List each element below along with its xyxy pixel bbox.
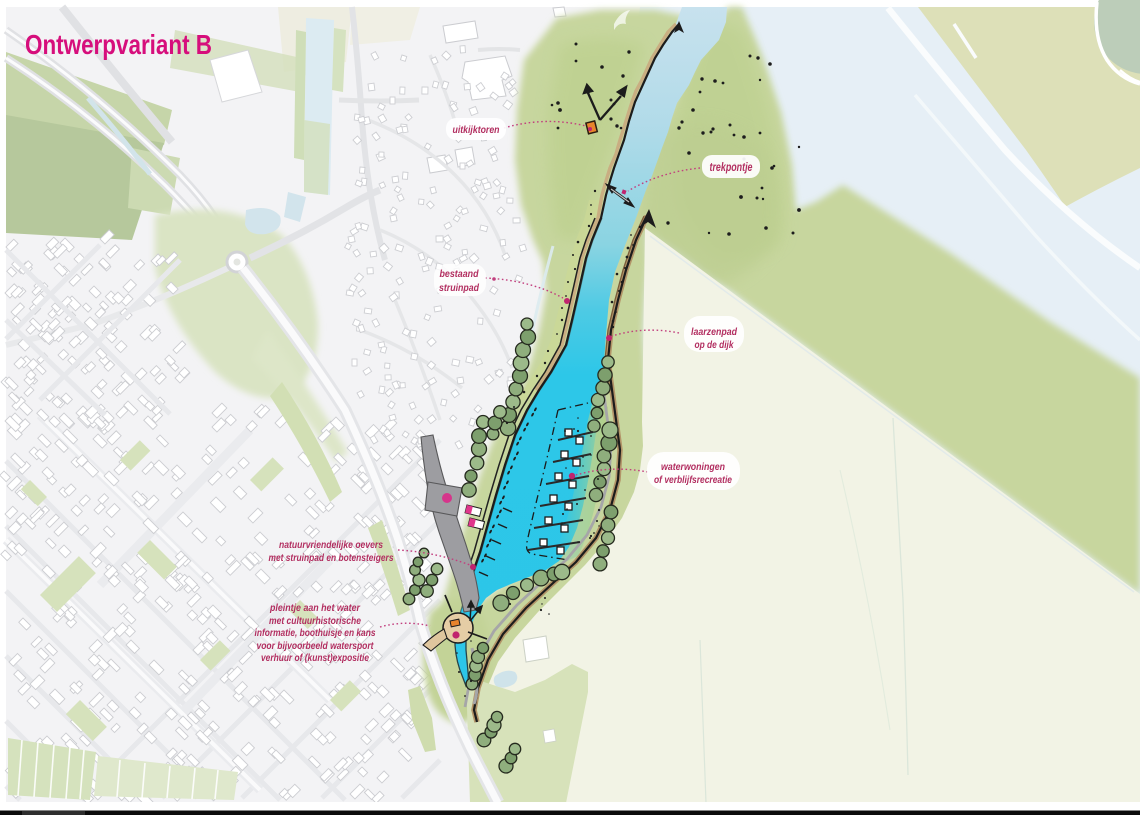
svg-text:uitkijktoren: uitkijktoren bbox=[453, 124, 500, 136]
svg-text:struinpad: struinpad bbox=[439, 282, 479, 294]
svg-text:pleintje aan het water: pleintje aan het water bbox=[269, 602, 361, 614]
svg-text:met struinpad en botensteigers: met struinpad en botensteigers bbox=[269, 552, 394, 564]
svg-text:voor bijvoorbeeld watersport: voor bijvoorbeeld watersport bbox=[257, 640, 374, 652]
svg-text:informatie, boothuisje en kans: informatie, boothuisje en kans bbox=[255, 627, 376, 639]
svg-text:op de dijk: op de dijk bbox=[695, 339, 735, 351]
svg-text:Ontwerpvariant B: Ontwerpvariant B bbox=[25, 29, 212, 60]
svg-text:natuurvriendelijke oevers: natuurvriendelijke oevers bbox=[279, 539, 383, 551]
svg-text:met cultuurhistorische: met cultuurhistorische bbox=[269, 615, 361, 627]
svg-text:laarzenpad: laarzenpad bbox=[691, 326, 737, 338]
svg-text:bestaand: bestaand bbox=[440, 268, 479, 280]
svg-text:trekpontje: trekpontje bbox=[710, 162, 753, 174]
svg-text:verhuur of (kunst)expositie: verhuur of (kunst)expositie bbox=[261, 652, 369, 664]
svg-text:of verblijfsrecreatie: of verblijfsrecreatie bbox=[654, 474, 732, 486]
svg-text:waterwoningen: waterwoningen bbox=[661, 461, 725, 473]
